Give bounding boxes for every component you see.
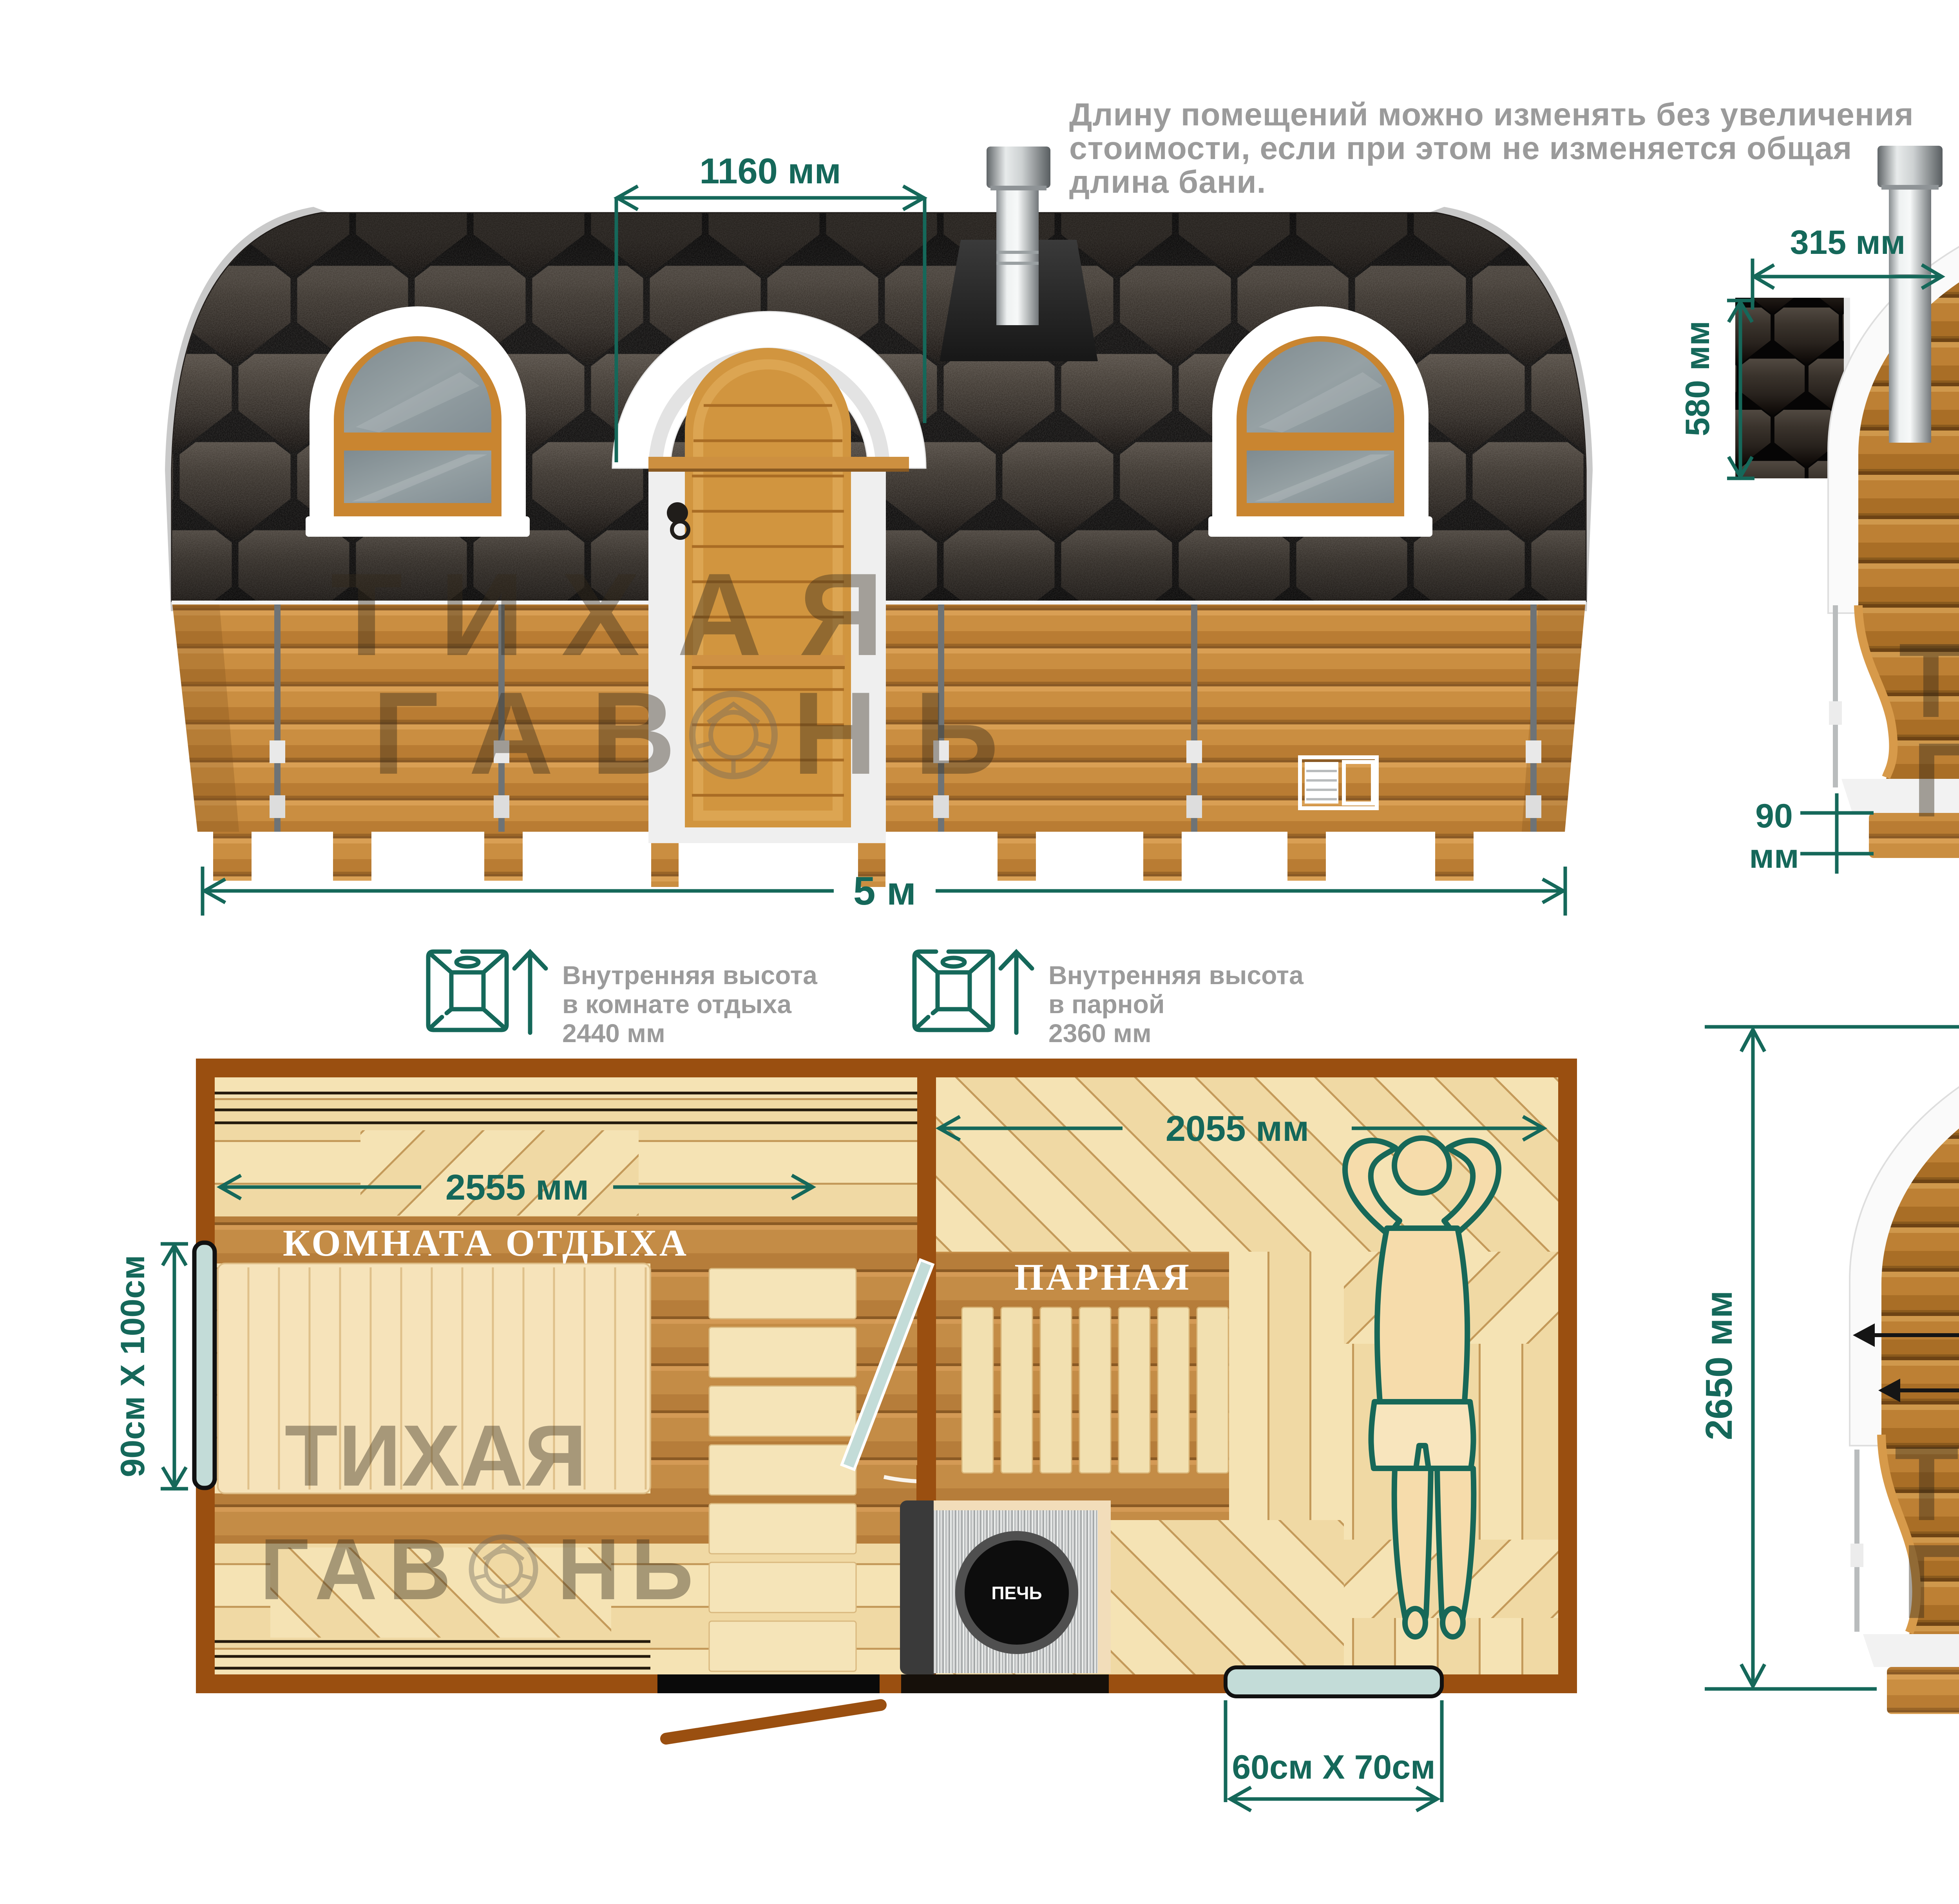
svg-text:НЬ: НЬ xyxy=(557,1521,704,1618)
svg-text:длина бани.: длина бани. xyxy=(1069,164,1266,200)
svg-text:ГАВ: ГАВ xyxy=(1902,1523,1959,1641)
svg-text:ГАВ: ГАВ xyxy=(1912,721,1959,839)
svg-text:2055 мм: 2055 мм xyxy=(1166,1109,1309,1149)
svg-text:стоимости, если при этом не из: стоимости, если при этом не изменяется о… xyxy=(1069,130,1852,166)
svg-text:5 м: 5 м xyxy=(853,869,916,913)
svg-text:315 мм: 315 мм xyxy=(1790,224,1906,261)
svg-text:2555 мм: 2555 мм xyxy=(445,1167,589,1207)
svg-text:Внутренняя высота: Внутренняя высота xyxy=(1048,961,1304,990)
svg-text:в комнате отдыха: в комнате отдыха xyxy=(562,990,792,1019)
svg-text:2440 мм: 2440 мм xyxy=(562,1019,665,1048)
svg-text:90см X 100см: 90см X 100см xyxy=(114,1255,152,1477)
svg-text:2650 мм: 2650 мм xyxy=(1698,1290,1740,1440)
svg-text:ПАРНАЯ: ПАРНАЯ xyxy=(1014,1256,1191,1298)
svg-text:60см X 70см: 60см X 70см xyxy=(1232,1748,1435,1786)
svg-text:2360 мм: 2360 мм xyxy=(1048,1019,1152,1048)
svg-text:ТИХАЯ: ТИХАЯ xyxy=(331,548,921,680)
svg-text:КОМНАТА ОТДЫХА: КОМНАТА ОТДЫХА xyxy=(283,1222,689,1264)
svg-text:1160 мм: 1160 мм xyxy=(699,151,841,191)
svg-text:ГАВ: ГАВ xyxy=(372,667,713,799)
svg-text:НЬ: НЬ xyxy=(792,667,1036,799)
svg-text:мм: мм xyxy=(1749,838,1799,875)
svg-text:Длину помещений можно изменять: Длину помещений можно изменять без увели… xyxy=(1069,97,1914,132)
svg-text:Внутренняя высота: Внутренняя высота xyxy=(562,961,818,990)
svg-text:580 мм: 580 мм xyxy=(1679,321,1716,436)
svg-text:в парной: в парной xyxy=(1048,990,1165,1019)
svg-text:ПЕЧЬ: ПЕЧЬ xyxy=(991,1583,1042,1603)
svg-text:ТИХАЯ: ТИХАЯ xyxy=(284,1407,587,1504)
svg-text:ГАВ: ГАВ xyxy=(260,1521,462,1618)
svg-text:90: 90 xyxy=(1755,797,1793,835)
